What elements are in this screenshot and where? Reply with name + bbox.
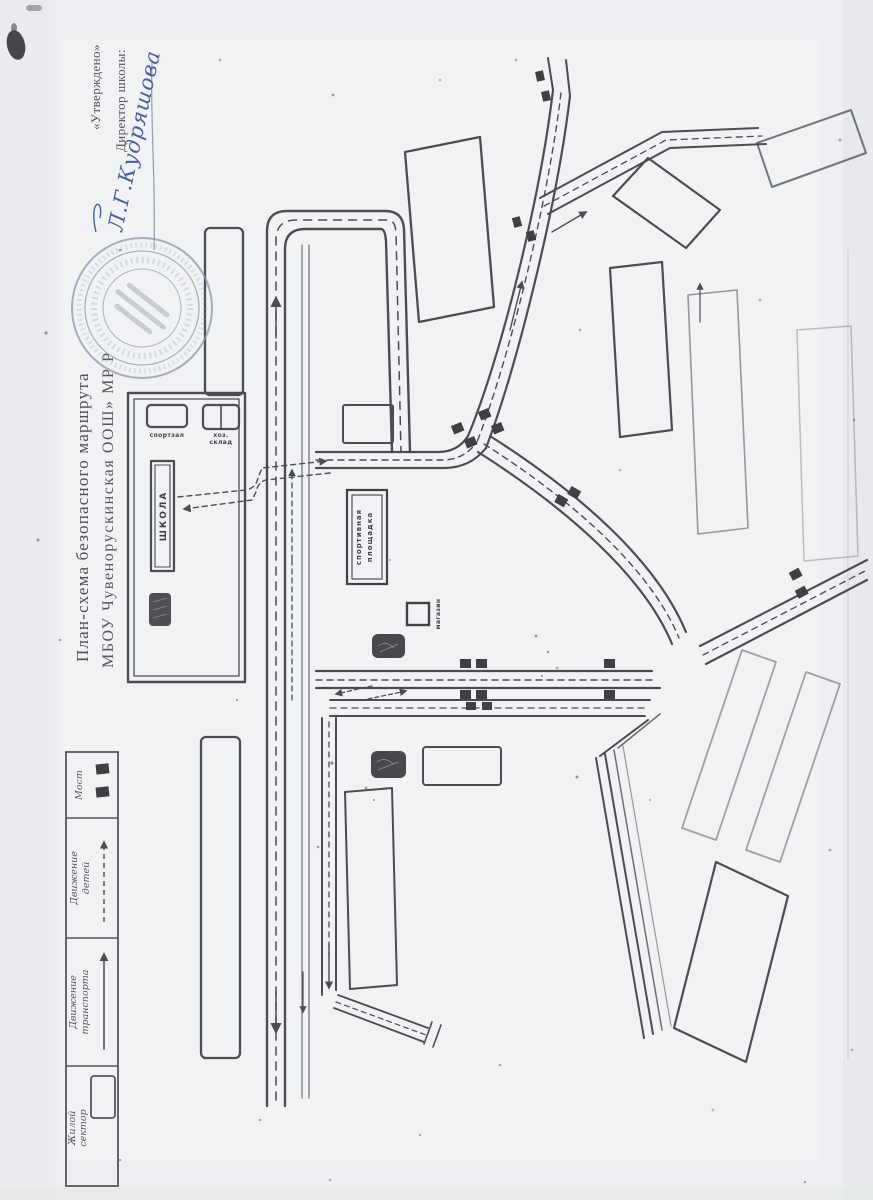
sports-ground-label-line2: площадка (366, 512, 374, 562)
route-plan-drawing: спортивная площадка магазин спортзал (0, 0, 873, 1200)
shop-label: магазин (435, 599, 442, 630)
storage-label-line1: хоз. (213, 432, 228, 439)
legend-children-label-line1: Движение (69, 851, 80, 906)
club-building (372, 634, 405, 658)
scanned-route-plan-page: спортивная площадка магазин спортзал (0, 0, 873, 1200)
legend-residential-label-line1: Жилой (67, 1111, 78, 1147)
sports-ground-label-line1: спортивная (355, 509, 363, 565)
garage-building (149, 593, 171, 626)
legend-traffic-label-line2: транспорта (80, 969, 91, 1034)
legend-residential-label-line2: сектор (78, 1109, 89, 1146)
legend-bridge-label: Мост (74, 770, 85, 801)
approval-quote: «Утверждено» (88, 44, 103, 130)
storage-label-line2: склад (210, 439, 233, 446)
document-title-line1: План-схема безопасного маршрута (73, 372, 92, 662)
document-title-line2: МБОУ Чувенорускинская ООШ» МР Р (100, 351, 117, 668)
legend-traffic-label-line1: Движение (68, 975, 79, 1030)
school-label: ШКОЛА (159, 491, 169, 542)
service-building (371, 751, 406, 778)
sport-hall-label: спортзал (150, 432, 185, 439)
legend-children-label-line2: детей (81, 862, 92, 894)
